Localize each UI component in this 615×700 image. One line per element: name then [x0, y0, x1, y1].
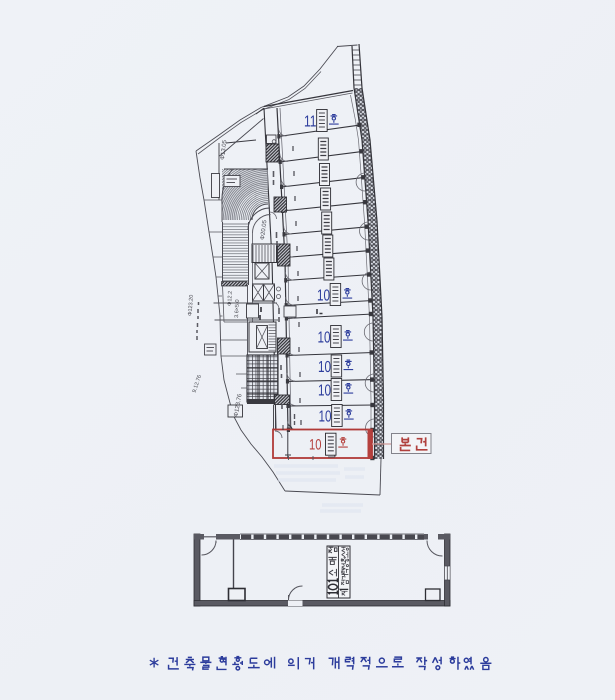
svg-text:10: 10 — [317, 288, 330, 305]
svg-text:Φ12.2: Φ12.2 — [227, 291, 234, 306]
svg-text:10: 10 — [318, 330, 331, 347]
svg-text:Φ123.20: Φ123.20 — [188, 295, 195, 317]
svg-text:10: 10 — [318, 359, 331, 376]
svg-text:11: 11 — [304, 114, 317, 131]
svg-text:9.12.76: 9.12.76 — [192, 374, 203, 393]
svg-text:10: 10 — [319, 409, 332, 426]
svg-text:Φ20.05: Φ20.05 — [259, 219, 268, 240]
svg-text:Φ13.05: Φ13.05 — [219, 139, 228, 160]
svg-text:10: 10 — [309, 437, 322, 454]
svg-text:10: 10 — [318, 383, 331, 400]
svg-text:3.6×5.0: 3.6×5.0 — [234, 299, 241, 318]
